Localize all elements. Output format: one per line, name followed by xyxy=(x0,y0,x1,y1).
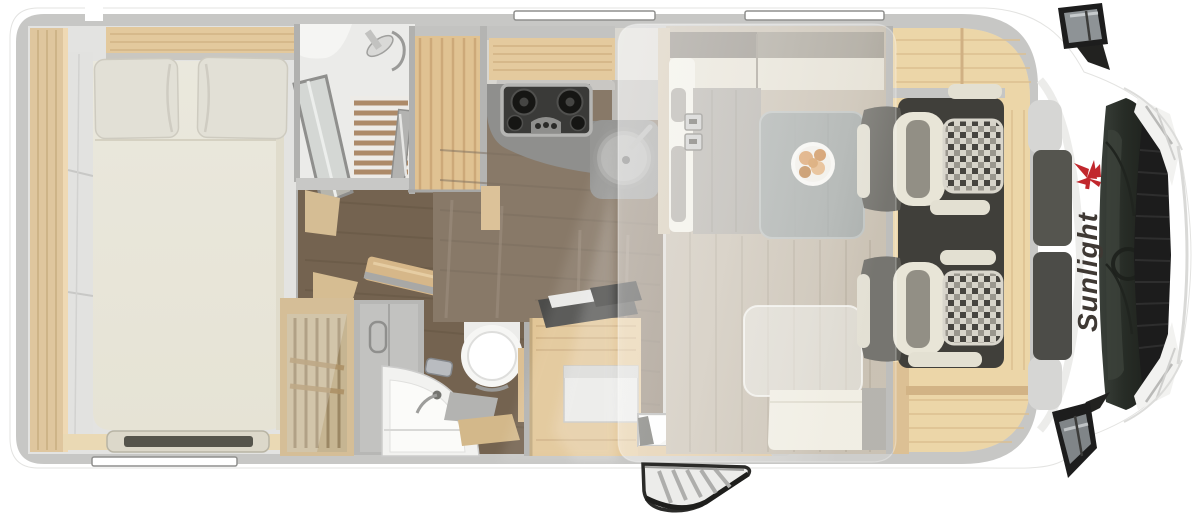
svg-text:Sunlight: Sunlight xyxy=(1072,211,1103,332)
